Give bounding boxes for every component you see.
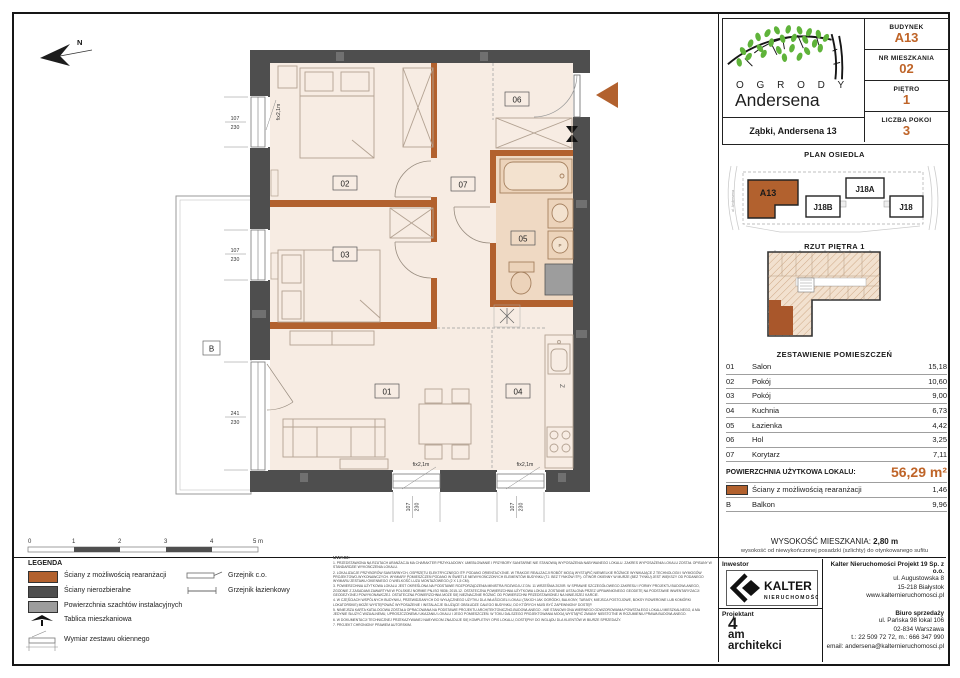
north-arrow-icon: N — [40, 38, 92, 66]
kitchen-mark: Z — [558, 384, 565, 388]
svg-text:0: 0 — [28, 539, 32, 545]
svg-text:4: 4 — [210, 539, 214, 545]
info-row-apartment-no: NR MIESZKANIA 02 — [865, 50, 948, 81]
building-a13-label: A13 — [760, 188, 777, 198]
apartment-height: WYSOKOŚĆ MIESZKANIA: 2,80 m — [722, 537, 947, 546]
apartment-info: BUDYNEK A13 NR MIESZKANIA 02 PIĘTRO 1 LI… — [864, 19, 948, 142]
table-row: 05Łazienka4,42 — [726, 418, 947, 433]
table-row-rearrangeable: Ściany z możliwością rearanżacji1,46 — [726, 483, 947, 498]
note-item: 2. LOKALIZACJE PRZYBORÓW SANITARNYCH, OS… — [333, 571, 715, 584]
scale-bar: 0 1 2 3 4 5 m — [24, 532, 270, 556]
svg-text:230: 230 — [231, 125, 240, 131]
table-row: 07Korytarz7,11 — [726, 448, 947, 463]
note-item: 6. W DOKUMENTACJI TECHNICZNEJ PRZEKAZYWA… — [333, 618, 715, 622]
legend-label: Powierzchnia szachtów instalacyjnych — [64, 602, 182, 609]
investor-label: Inwestor — [722, 561, 749, 568]
catalog-sheet: N B — [0, 0, 960, 678]
info-row-building: BUDYNEK A13 — [865, 19, 948, 50]
brand-tree-icon — [726, 22, 858, 82]
balcony-label: B — [209, 345, 214, 354]
street-label-left: ul. Andersena — [731, 190, 735, 212]
building-a13-shape — [748, 180, 798, 218]
balcony: B — [176, 196, 251, 494]
total-area-label: POWIERZCHNIA UŻYTKOWA LOKALU: — [726, 469, 891, 476]
svg-text:230: 230 — [231, 257, 240, 263]
north-label: N — [77, 38, 82, 47]
notes-block: UWAGI: 1. PRZEDSTAWIONA NA RZUTACH ARANŻ… — [333, 555, 715, 628]
floor-overview-map — [722, 250, 947, 348]
entrance-arrow-icon — [596, 82, 618, 108]
radiator-bathroom-legend-icon — [186, 586, 224, 595]
investor-contact: Kalter Nieruchomości Projekt 19 Sp. z o.… — [826, 561, 944, 601]
note-item: 3. POWIERZCHNIA UŻYTKOWA LOKALU JEST OKR… — [333, 584, 715, 597]
svg-text:02: 02 — [341, 180, 350, 189]
svg-text:230: 230 — [519, 503, 525, 512]
svg-text:107: 107 — [510, 503, 516, 512]
svg-text:107: 107 — [231, 116, 240, 122]
svg-text:1: 1 — [72, 539, 76, 545]
legend-label: Ściany nierozbieralne — [64, 587, 131, 594]
legend-label: Grzejnik łazienkowy — [228, 587, 290, 594]
apartment-height-note: wysokość od niewykończonej posadzki (szl… — [720, 548, 949, 554]
table-row: 02Pokój10,60 — [726, 375, 947, 390]
total-area-value: 56,29 m² — [891, 464, 947, 480]
legend-label: Grzejnik c.o. — [228, 572, 267, 579]
rooms-table: 01Salon15,18 02Pokój10,60 03Pokój9,00 04… — [726, 360, 947, 512]
radiator-co-legend-icon — [186, 571, 224, 580]
sales-office-label: Biuro sprzedaży — [826, 610, 944, 617]
table-total-row: POWIERZCHNIA UŻYTKOWA LOKALU: 56,29 m² — [726, 462, 947, 483]
building-j18a-label: J18A — [855, 185, 874, 194]
svg-text:fix2,1m: fix2,1m — [517, 462, 534, 468]
table-row: 06Hol3,25 — [726, 433, 947, 448]
svg-text:5 m: 5 m — [253, 539, 263, 545]
installation-shaft — [545, 264, 573, 295]
info-row-floor: PIĘTRO 1 — [865, 81, 948, 112]
notes-title: UWAGI: — [333, 555, 715, 560]
rearrangeable-walls-swatch — [726, 485, 748, 495]
legend-swatch-rearrangeable-walls — [28, 571, 58, 583]
note-item: 5. NINIEJSZA KARTA KATALOGOWA ZOSTAŁA OP… — [333, 608, 715, 617]
svg-text:Z: Z — [558, 384, 565, 388]
legend-title: LEGENDA — [28, 560, 62, 567]
svg-text:fix2,1m: fix2,1m — [276, 104, 282, 121]
site-plan-map: ul. Andersena A13 J18B J18A J18 — [722, 160, 947, 238]
site-plan-title: PLAN OSIEDLA — [722, 150, 947, 159]
svg-text:107: 107 — [231, 248, 240, 254]
floor-plan: N B — [12, 12, 718, 558]
svg-text:230: 230 — [231, 420, 240, 426]
table-row-balcony: B Balkon9,96 — [726, 498, 947, 513]
svg-text:230: 230 — [415, 503, 421, 512]
project-address: Ząbki, Andersena 13 — [722, 117, 864, 144]
table-row: 03Pokój9,00 — [726, 389, 947, 404]
brand-name-main: Andersena — [735, 90, 820, 111]
company-hdivider — [718, 608, 822, 609]
legend-label: Ściany z możliwością rearanżacji — [64, 572, 166, 579]
svg-text:107: 107 — [406, 503, 412, 512]
table-row: 04Kuchnia6,73 — [726, 404, 947, 419]
note-item: 7. PROJEKT CHRONIONY PRAWEM AUTORSKIM. — [333, 623, 715, 627]
kalter-logo: KALTER nieruchomości — [726, 570, 818, 606]
building-j18b-label: J18B — [813, 203, 832, 212]
svg-text:03: 03 — [341, 251, 350, 260]
legend-label: Wymiar zestawu okiennego — [64, 636, 150, 643]
table-row: 01Salon15,18 — [726, 360, 947, 375]
svg-text:3: 3 — [164, 539, 168, 545]
kalter-logo-subtext: nieruchomości — [764, 594, 818, 601]
info-row-rooms: LICZBA POKOI 3 — [865, 112, 948, 142]
washer-mark: P — [558, 243, 561, 248]
kalter-logo-text: KALTER — [764, 579, 812, 593]
legend-label: Tablica mieszkaniowa — [64, 616, 132, 623]
note-item: 1. PRZEDSTAWIONA NA RZUTACH ARANŻACJA MA… — [333, 561, 715, 570]
window-dimension-legend-icon — [26, 630, 60, 652]
apartment-board-legend-icon — [30, 615, 54, 627]
legend-swatch-shaft — [28, 601, 58, 613]
4am-logo: 4 am architekci — [728, 617, 782, 652]
building-j18-label: J18 — [899, 203, 913, 212]
legend-swatch-fixed-walls — [28, 586, 58, 598]
company-divider — [822, 559, 823, 662]
svg-text:07: 07 — [459, 181, 468, 190]
svg-text:01: 01 — [383, 388, 392, 397]
svg-text:241: 241 — [231, 411, 240, 417]
sales-office-contact: Biuro sprzedaży ul. Pańska 98 lokal 106 … — [826, 610, 944, 651]
investor-company-name: Kalter Nieruchomości Projekt 19 Sp. z o.… — [826, 561, 944, 575]
svg-text:04: 04 — [514, 388, 523, 397]
panel-divider — [718, 12, 719, 662]
svg-text:fix2,1m: fix2,1m — [413, 462, 430, 468]
svg-text:05: 05 — [519, 235, 528, 244]
svg-text:2: 2 — [118, 539, 122, 545]
note-item: 4. W CZĘŚCIACH WSPÓLNYCH BUDYNKU, PRZEWI… — [333, 598, 715, 607]
rooms-table-title: ZESTAWIENIE POMIESZCZEŃ — [722, 350, 947, 359]
svg-text:06: 06 — [513, 96, 522, 105]
